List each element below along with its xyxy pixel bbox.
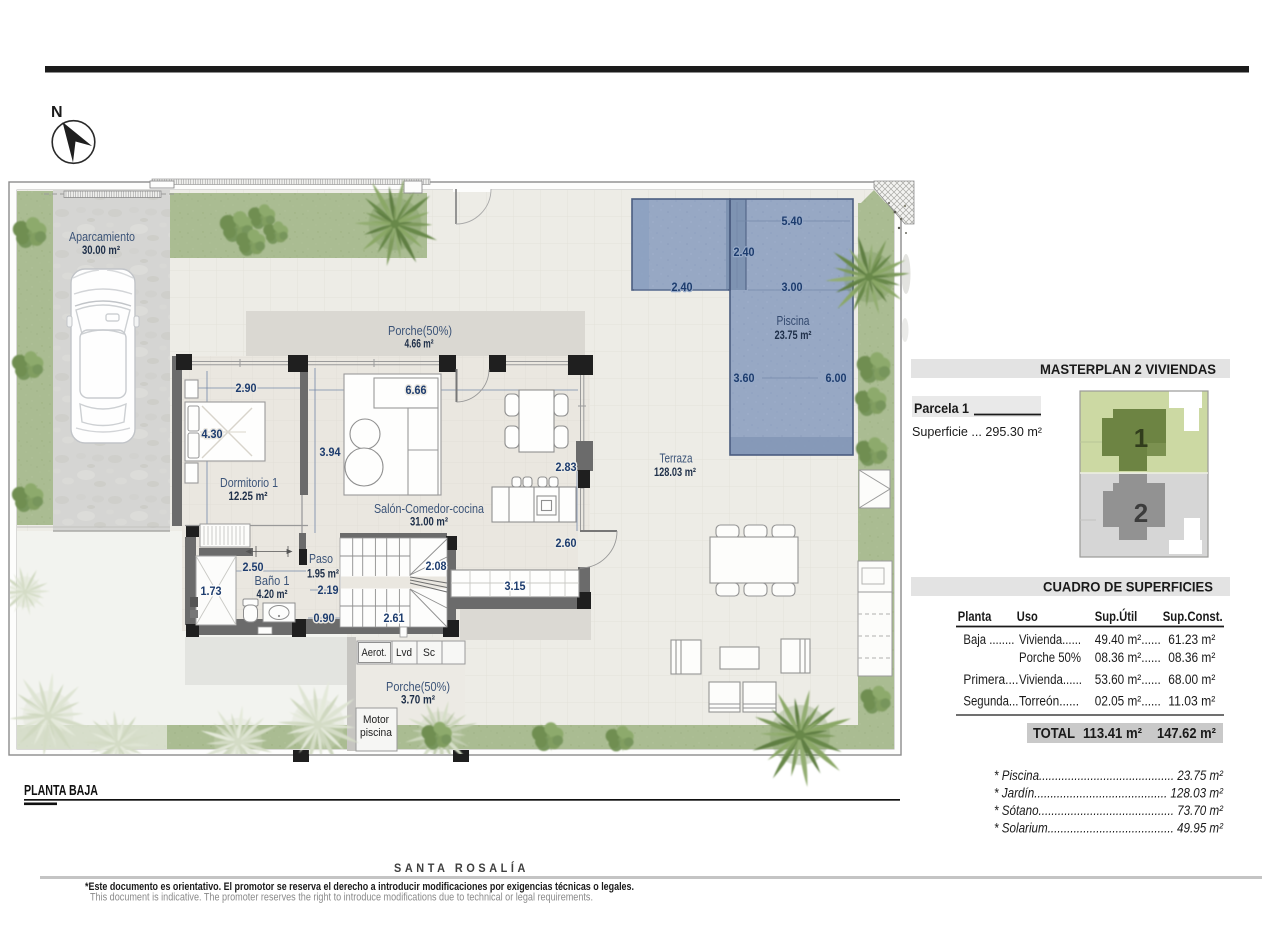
svg-text:Planta: Planta [958, 609, 992, 624]
svg-text:3.60: 3.60 [734, 371, 755, 385]
svg-text:* Sótano......................: * Sótano................................… [994, 803, 1223, 818]
svg-text:2.40: 2.40 [672, 280, 693, 294]
svg-text:Uso: Uso [1017, 609, 1038, 624]
svg-text:128.03 m²: 128.03 m² [654, 465, 696, 479]
svg-text:Piscina: Piscina [777, 313, 811, 328]
svg-text:30.00 m²: 30.00 m² [82, 243, 120, 257]
svg-text:2.19: 2.19 [318, 583, 339, 597]
svg-text:147.62 m²: 147.62 m² [1157, 726, 1216, 742]
svg-text:Porche 50%: Porche 50% [1019, 650, 1081, 665]
svg-text:2.61: 2.61 [384, 611, 405, 625]
svg-text:Dormitorio 1: Dormitorio 1 [220, 475, 278, 490]
svg-text:49.40 m²......: 49.40 m²...... [1095, 632, 1161, 647]
svg-text:0.90: 0.90 [314, 611, 335, 625]
svg-text:2.08: 2.08 [426, 559, 447, 573]
svg-text:3.70 m²: 3.70 m² [401, 693, 435, 707]
svg-text:2.90: 2.90 [236, 381, 257, 395]
svg-text:2.60: 2.60 [556, 536, 577, 550]
svg-text:3.15: 3.15 [505, 579, 526, 593]
svg-text:Aerot.: Aerot. [362, 647, 387, 659]
svg-text:2: 2 [1134, 498, 1148, 528]
svg-text:31.00 m²: 31.00 m² [410, 515, 448, 529]
svg-text:TOTAL: TOTAL [1033, 726, 1075, 742]
svg-text:02.05 m²......: 02.05 m²...... [1095, 694, 1161, 709]
svg-text:Baja ........: Baja ........ [963, 632, 1014, 647]
svg-text:11.03 m²: 11.03 m² [1168, 694, 1215, 709]
svg-text:CUADRO DE SUPERFICIES: CUADRO DE SUPERFICIES [1043, 579, 1213, 595]
svg-text:* Jardín......................: * Jardín................................… [994, 786, 1223, 801]
svg-text:68.00 m²: 68.00 m² [1168, 672, 1215, 687]
svg-text:SANTA ROSALÍA: SANTA ROSALÍA [394, 860, 529, 875]
svg-text:Superficie ... 295.30 m²: Superficie ... 295.30 m² [912, 424, 1043, 439]
svg-text:1.95 m²: 1.95 m² [307, 567, 339, 581]
svg-text:1.73: 1.73 [201, 584, 222, 598]
svg-text:Sup.Const.: Sup.Const. [1163, 609, 1223, 624]
svg-text:* Piscina.....................: * Piscina...............................… [994, 768, 1223, 783]
svg-text:MASTERPLAN 2 VIVIENDAS: MASTERPLAN 2 VIVIENDAS [1040, 361, 1216, 377]
svg-text:3.94: 3.94 [320, 445, 341, 459]
svg-text:Baño 1: Baño 1 [255, 573, 290, 588]
svg-text:08.36 m²......: 08.36 m²...... [1095, 650, 1161, 665]
svg-text:piscina: piscina [360, 727, 393, 739]
svg-text:113.41 m²: 113.41 m² [1083, 726, 1142, 742]
svg-text:4.20 m²: 4.20 m² [257, 587, 288, 601]
svg-text:Segunda...: Segunda... [963, 694, 1018, 709]
svg-text:Torreón......: Torreón...... [1019, 694, 1079, 709]
svg-text:Paso: Paso [309, 551, 333, 566]
svg-text:2.40: 2.40 [734, 245, 755, 259]
svg-text:6.66: 6.66 [406, 383, 427, 397]
svg-text:Vivienda......: Vivienda...... [1019, 632, 1081, 647]
svg-text:6.00: 6.00 [826, 371, 847, 385]
svg-text:1: 1 [1134, 423, 1148, 453]
svg-text:N: N [51, 104, 63, 121]
svg-text:2.50: 2.50 [243, 560, 264, 574]
svg-text:2.83: 2.83 [556, 460, 577, 474]
svg-text:53.60 m²......: 53.60 m²...... [1095, 672, 1161, 687]
svg-text:4.30: 4.30 [202, 427, 223, 441]
svg-text:This document is indicative. T: This document is indicative. The promote… [90, 892, 593, 904]
svg-text:* Solarium....................: * Solarium..............................… [994, 821, 1223, 836]
svg-text:5.40: 5.40 [782, 214, 803, 228]
svg-text:PLANTA BAJA: PLANTA BAJA [24, 783, 98, 799]
svg-text:61.23 m²: 61.23 m² [1168, 632, 1215, 647]
svg-text:Sc: Sc [423, 647, 435, 659]
svg-text:Motor: Motor [363, 714, 389, 726]
svg-text:Primera....: Primera.... [963, 672, 1018, 687]
svg-text:Terraza: Terraza [660, 451, 693, 466]
svg-text:3.00: 3.00 [782, 280, 803, 294]
svg-text:23.75 m²: 23.75 m² [775, 328, 812, 342]
svg-text:Parcela 1: Parcela 1 [914, 400, 969, 416]
svg-text:Lvd: Lvd [396, 647, 412, 659]
svg-text:Aparcamiento: Aparcamiento [69, 229, 135, 244]
svg-text:Vivienda......: Vivienda...... [1019, 672, 1082, 687]
svg-text:Sup.Útil: Sup.Útil [1095, 609, 1138, 624]
svg-text:12.25 m²: 12.25 m² [229, 489, 268, 503]
svg-text:4.66 m²: 4.66 m² [405, 337, 434, 351]
svg-text:08.36 m²: 08.36 m² [1168, 650, 1215, 665]
